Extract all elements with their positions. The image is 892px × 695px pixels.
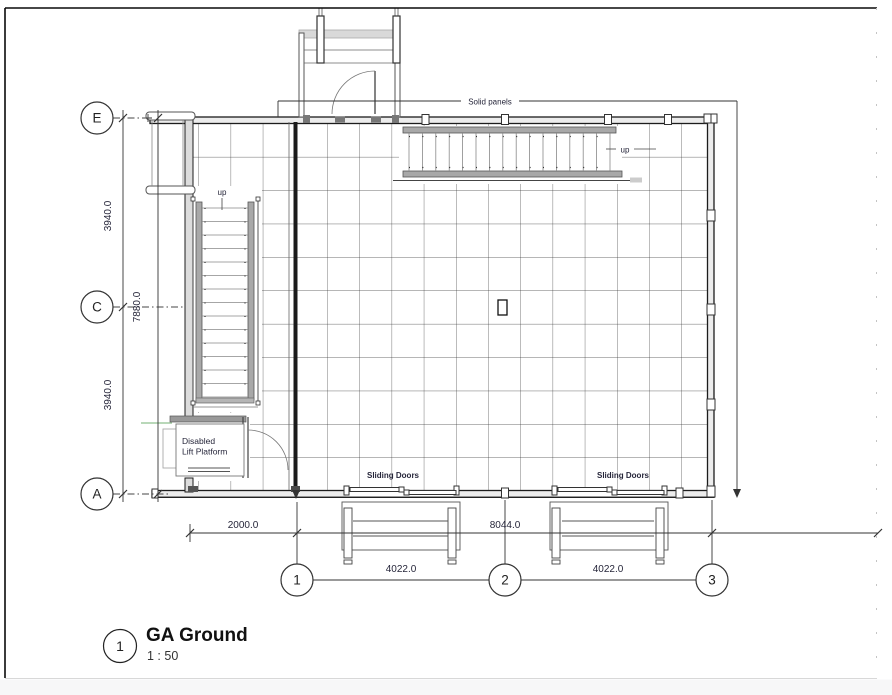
sliding-doors-left-label: Sliding Doors bbox=[367, 471, 420, 480]
stair-top-up-label: up bbox=[621, 146, 630, 155]
lift-label-line2: Lift Platform bbox=[182, 447, 227, 457]
canopy-post-east bbox=[393, 16, 400, 63]
grid-label-a: A bbox=[92, 487, 101, 502]
stair-left-stringer-east bbox=[248, 202, 254, 400]
grid-label-c: C bbox=[92, 300, 102, 315]
stair-left-up-label: up bbox=[218, 188, 227, 197]
west-landing-bottom-bar bbox=[146, 186, 195, 194]
dimensions-bottom: 2000.0 8044.0 1 2 3 4022.0 4022.0 bbox=[186, 490, 882, 596]
leader-arrow bbox=[733, 489, 741, 498]
grid-label-e: E bbox=[92, 111, 101, 126]
grid-label-1: 1 bbox=[293, 573, 301, 588]
entrance-vestibule bbox=[299, 8, 400, 123]
grid-label-3: 3 bbox=[708, 573, 716, 588]
view-scale: 1 : 50 bbox=[147, 649, 178, 663]
wall-north bbox=[150, 117, 714, 124]
view-title-block: 1 GA Ground 1 : 50 bbox=[104, 625, 248, 663]
lift-label-line1: Disabled bbox=[182, 436, 215, 446]
stair-left-stringer-west bbox=[196, 202, 202, 400]
dim-e-to-a: 7880.0 bbox=[132, 291, 143, 322]
dim-grid2-to-grid3: 4022.0 bbox=[593, 564, 624, 575]
floor-plan-svg: E C A 3940.0 3940.0 7880.0 2000.0 bbox=[0, 0, 892, 695]
grid-label-2: 2 bbox=[501, 573, 509, 588]
sliding-doors-right-label: Sliding Doors bbox=[597, 471, 650, 480]
canopy-post-west bbox=[317, 16, 324, 63]
view-title: GA Ground bbox=[146, 625, 248, 646]
stair-top-stringer-north bbox=[403, 127, 616, 133]
lift-top-bar bbox=[170, 416, 246, 422]
dim-west-offset: 2000.0 bbox=[228, 520, 259, 531]
solid-panels-label: Solid panels bbox=[468, 98, 512, 107]
canopy-edge bbox=[299, 30, 400, 38]
wall-west bbox=[185, 117, 193, 417]
dim-grid1-to-grid3: 8044.0 bbox=[490, 520, 521, 531]
vestibule-wall-west bbox=[299, 33, 304, 117]
west-landing-top-bar bbox=[146, 112, 195, 120]
dim-grid1-to-grid2: 4022.0 bbox=[386, 564, 417, 575]
drawing-sheet: E C A 3940.0 3940.0 7880.0 2000.0 bbox=[0, 0, 892, 695]
dim-c-to-a: 3940.0 bbox=[103, 379, 114, 410]
stair-top-stringer-south bbox=[403, 171, 622, 177]
column-box bbox=[498, 300, 507, 315]
dim-e-to-c: 3940.0 bbox=[103, 200, 114, 231]
view-number: 1 bbox=[116, 638, 124, 654]
entrance-door-swing bbox=[332, 71, 375, 114]
